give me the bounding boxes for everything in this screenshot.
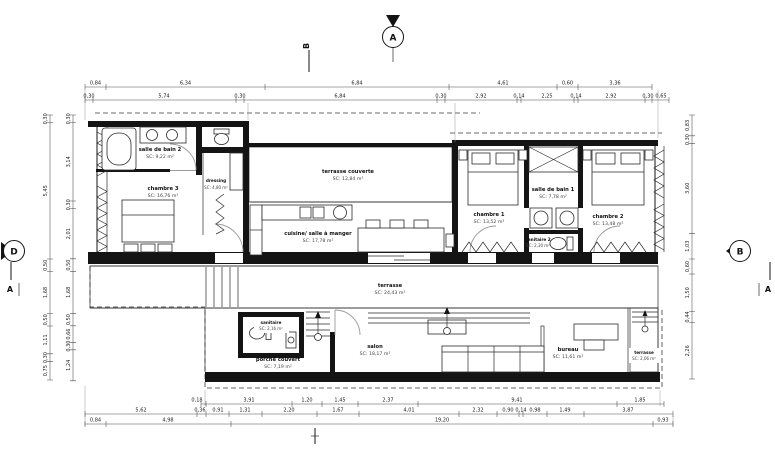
dim-label: 1,68 bbox=[66, 287, 72, 298]
bed-chambre1 bbox=[459, 150, 527, 205]
dim-label: 0,30 bbox=[66, 341, 72, 352]
dim-label: 3,36 bbox=[609, 81, 620, 87]
room-area-porche: SC: 7,19 m² bbox=[264, 364, 292, 370]
dim-label: 0,60 bbox=[685, 261, 691, 272]
paper-background bbox=[0, 0, 775, 450]
floor-plan-canvas: salle de bain 2 SC: 9,22 m² chambre 3 SC… bbox=[0, 0, 775, 450]
dim-label: 3,91 bbox=[243, 398, 254, 404]
dim-label: 0,44 bbox=[685, 311, 691, 322]
dim-label: 0,75 bbox=[43, 365, 49, 376]
room-label-cuisine: cuisine/ salle à manger bbox=[284, 230, 352, 237]
bed-chambre3 bbox=[122, 200, 174, 252]
dim-label: 5,74 bbox=[158, 94, 169, 100]
dim-label: 0,84 bbox=[90, 418, 101, 424]
dim-label: 0,30 bbox=[685, 134, 691, 145]
dim-label: 0,91 bbox=[212, 408, 223, 414]
dim-label: 0,30 bbox=[43, 352, 49, 363]
room-label-dressing: dressing bbox=[206, 178, 226, 183]
dim-label: 0,90 bbox=[502, 408, 513, 414]
dim-label: 1,03 bbox=[685, 241, 691, 252]
room-label-terrasse-couverte: terrasse couverte bbox=[322, 169, 374, 175]
dim-label: 0,93 bbox=[657, 418, 668, 424]
room-label-porche: porche couvert bbox=[256, 357, 301, 363]
dim-label: 5,45 bbox=[43, 185, 49, 196]
room-area-ch1: SC: 13,52 m² bbox=[474, 219, 505, 225]
section-marker-label: A bbox=[7, 285, 14, 294]
dim-label: 6,34 bbox=[180, 81, 191, 87]
dim-label: 0,98 bbox=[529, 408, 540, 414]
dim-label: 0,50 bbox=[66, 314, 72, 325]
dim-label: 0,30 bbox=[66, 113, 72, 124]
room-label-ch1: chambre 1 bbox=[474, 212, 505, 218]
dim-label: 0,14 bbox=[515, 408, 526, 414]
room-area-terrasse: SC: 24,43 m² bbox=[375, 290, 406, 296]
section-marker-label: B bbox=[302, 43, 311, 49]
dim-label: 2,26 bbox=[685, 345, 691, 356]
dim-label: 1,49 bbox=[559, 408, 570, 414]
room-area-salon: SC: 18,17 m² bbox=[360, 351, 391, 357]
dim-label: 1,20 bbox=[301, 398, 312, 404]
dim-label: 6,84 bbox=[334, 94, 345, 100]
room-label-terrasse-est: terrasse bbox=[634, 350, 654, 355]
room-label-terrasse: terrasse bbox=[378, 283, 403, 289]
room-label-bureau: bureau bbox=[558, 347, 579, 353]
dim-label: 6,84 bbox=[351, 81, 362, 87]
dim-label: 2,92 bbox=[605, 94, 616, 100]
dim-label: 1,68 bbox=[43, 287, 49, 298]
room-label-sdb1: salle de bain 1 bbox=[532, 187, 575, 193]
dim-label: 9,41 bbox=[511, 398, 522, 404]
dim-label: 1,24 bbox=[66, 360, 72, 371]
room-label-sanitaire: sanitaire bbox=[261, 320, 282, 325]
dim-label: 0,14 bbox=[570, 94, 581, 100]
section-marker-label: A bbox=[765, 285, 772, 294]
dim-label: 1,50 bbox=[685, 287, 691, 298]
dim-label: 2,32 bbox=[472, 408, 483, 414]
dim-label: 4,61 bbox=[497, 81, 508, 87]
dim-label: 0,14 bbox=[513, 94, 524, 100]
dim-label: 1,85 bbox=[634, 398, 645, 404]
shower-bath1 bbox=[529, 147, 578, 172]
dim-label: 2,20 bbox=[283, 408, 294, 414]
dim-label: 0,30 bbox=[83, 94, 94, 100]
room-label-san2: sanitaire 2 bbox=[525, 237, 550, 242]
dim-label: 1,67 bbox=[332, 408, 343, 414]
room-area-dressing: SC: 4,80 m² bbox=[204, 185, 228, 190]
section-marker-label: D bbox=[10, 248, 17, 258]
dim-label: 0,83 bbox=[685, 120, 691, 131]
dim-label: 0,18 bbox=[191, 398, 202, 404]
room-label-ch3: chambre 3 bbox=[148, 186, 179, 192]
dim-label: 0,50 bbox=[43, 314, 49, 325]
dim-label: 0,84 bbox=[90, 81, 101, 87]
dim-label: 19,20 bbox=[435, 418, 449, 424]
dim-label: 3,60 bbox=[685, 183, 691, 194]
dim-label: 0,30 bbox=[43, 113, 49, 124]
sofa bbox=[442, 346, 544, 372]
room-area-sanitaire: SC: 2,16 m² bbox=[259, 326, 283, 331]
room-area-bureau: SC: 11,61 m² bbox=[553, 354, 584, 360]
dim-label: 0,36 bbox=[194, 408, 205, 414]
room-area-sdb2: SC: 9,22 m² bbox=[146, 154, 174, 160]
bathtub bbox=[102, 128, 136, 170]
room-area-sdb1: SC: 7,78 m² bbox=[539, 194, 567, 200]
dim-label: 2,25 bbox=[541, 94, 552, 100]
room-area-terrasse-couverte: SC: 12,84 m² bbox=[333, 176, 364, 182]
dim-label: 4,01 bbox=[403, 408, 414, 414]
dim-label: 0,30 bbox=[435, 94, 446, 100]
dim-label: 5,62 bbox=[135, 408, 146, 414]
room-area-ch2: SC: 13,48 m² bbox=[593, 221, 624, 227]
dim-label: 3,14 bbox=[66, 156, 72, 167]
dim-label: 0,50 bbox=[43, 260, 49, 271]
dim-label: 0,30 bbox=[234, 94, 245, 100]
room-area-terrasse-est: SC: 2,06 m² bbox=[632, 356, 656, 361]
room-area-ch3: SC: 16,76 m² bbox=[148, 193, 179, 199]
dim-label: 0,60 bbox=[562, 81, 573, 87]
section-marker-label: B bbox=[737, 248, 744, 258]
room-area-cuisine: SC: 17,78 m² bbox=[303, 238, 334, 244]
wc-bath2 bbox=[214, 129, 229, 145]
room-label-salon: salon bbox=[367, 344, 383, 350]
room-area-san2: SC: 2,30 m² bbox=[526, 243, 550, 248]
dim-label: 3,87 bbox=[622, 408, 633, 414]
dim-label: 0,65 bbox=[655, 94, 666, 100]
dim-label: 2,01 bbox=[66, 228, 72, 239]
dim-label: 0,66 bbox=[66, 329, 72, 340]
room-label-ch2: chambre 2 bbox=[593, 214, 624, 220]
room-label-sdb2: salle de bain 2 bbox=[139, 147, 182, 153]
dim-label: 0,50 bbox=[66, 260, 72, 271]
wc-sanitaire2 bbox=[550, 237, 573, 250]
dim-label: 0,30 bbox=[642, 94, 653, 100]
double-sink-bath2 bbox=[140, 127, 186, 143]
section-marker-label: A bbox=[390, 34, 397, 44]
dim-label: 2,92 bbox=[475, 94, 486, 100]
dim-label: 2,37 bbox=[382, 398, 393, 404]
dim-label: 1,31 bbox=[239, 408, 250, 414]
dim-label: 4,98 bbox=[162, 418, 173, 424]
dim-label: 1,11 bbox=[43, 334, 49, 345]
bed-chambre2 bbox=[583, 150, 653, 205]
dim-label: 0,30 bbox=[66, 199, 72, 210]
dim-label: 1,45 bbox=[334, 398, 345, 404]
